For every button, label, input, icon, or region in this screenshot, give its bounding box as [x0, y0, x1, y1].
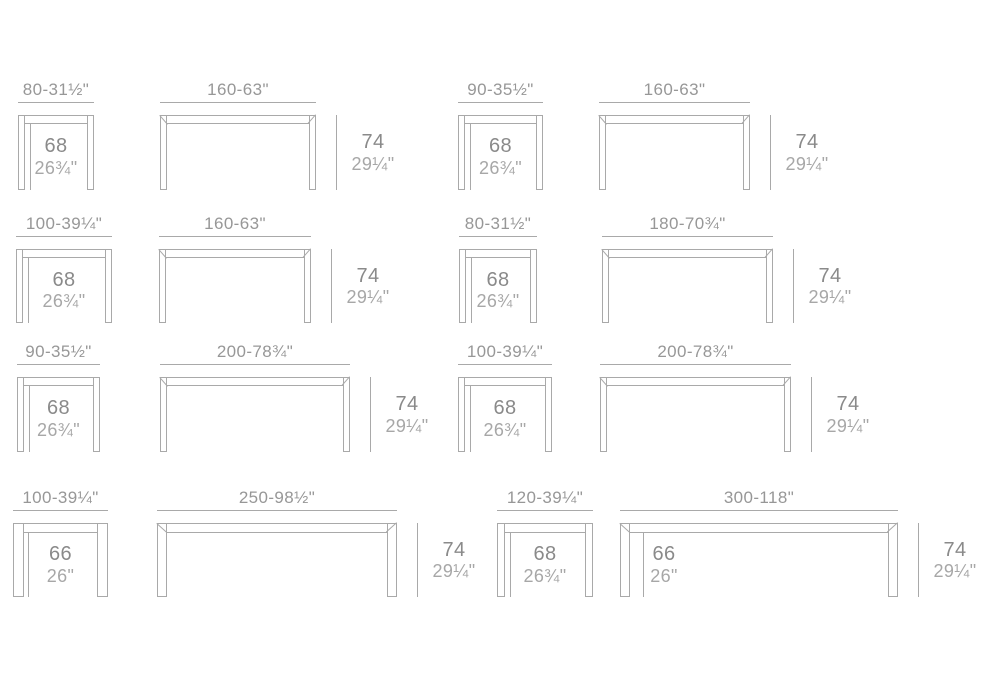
- height-label-inside: 68 26¾": [458, 385, 552, 452]
- tabletop-edge: [160, 377, 350, 378]
- width-dimension-label: 80-31½": [0, 80, 134, 100]
- table-leg-left: [157, 523, 167, 597]
- height-cm-value: 66: [652, 543, 675, 565]
- width-dimension-line: [458, 364, 552, 365]
- width-dimension-label: 90-35½": [0, 342, 140, 362]
- height-cm-value: 68: [52, 269, 75, 291]
- width-dimension-line: [159, 236, 311, 237]
- height-inches-value: 29¼": [826, 416, 869, 436]
- figure-table-80-row2: 80-31½" 68 26¾": [459, 249, 537, 323]
- width-dimension-line: [599, 102, 750, 103]
- height-label-right: 74 29¼": [339, 249, 397, 323]
- height-inches-value: 29¼": [346, 287, 389, 307]
- height-label-inside: 68 26¾": [16, 257, 112, 323]
- figure-table-160-row1-b: 160-63" 74 29¼": [599, 115, 750, 190]
- height-label-inside: 68 26¾": [458, 123, 543, 190]
- height-dimension-line: [417, 523, 418, 597]
- tabletop-edge: [13, 523, 108, 524]
- tabletop-edge: [18, 115, 94, 116]
- width-dimension-label: 200-78¾": [560, 342, 831, 362]
- height-label-inside: 66 26": [624, 532, 704, 597]
- height-cm-value: 66: [49, 543, 72, 565]
- height-inches-value: 26": [47, 566, 75, 586]
- height-inches-value: 26¾": [42, 291, 85, 311]
- tabletop-apron-line: [607, 385, 784, 386]
- table-leg-right: [343, 377, 350, 452]
- table-leg-right: [888, 523, 898, 597]
- table-leg-left: [600, 377, 607, 452]
- height-cm-value: 74: [836, 393, 859, 415]
- figure-table-90-row3: 90-35½" 68 26¾": [17, 377, 100, 452]
- height-cm-value: 68: [493, 397, 516, 419]
- height-inches-value: 26¾": [523, 566, 566, 586]
- dimension-diagram: 80-31½" 68 26¾" 160-63" 74 29¼" 90-35½": [0, 0, 1000, 700]
- tabletop-apron-line: [167, 123, 309, 124]
- height-label-right: 74 29¼": [926, 523, 984, 597]
- height-label-right: 74 29¼": [801, 249, 859, 323]
- height-label-right: 74 29¼": [378, 377, 436, 452]
- height-cm-value: 68: [486, 269, 509, 291]
- height-dimension-line: [793, 249, 794, 323]
- height-cm-value: 74: [361, 131, 384, 153]
- tabletop-edge: [16, 249, 112, 250]
- width-dimension-line: [620, 510, 898, 511]
- table-leg-right: [309, 115, 316, 190]
- height-inches-value: 29¼": [351, 154, 394, 174]
- width-dimension-line: [16, 236, 112, 237]
- height-dimension-line: [918, 523, 919, 597]
- figure-table-80-row1: 80-31½" 68 26¾": [18, 115, 94, 190]
- height-inches-value: 26¾": [37, 420, 80, 440]
- table-leg-left: [599, 115, 606, 190]
- tabletop-edge: [458, 115, 543, 116]
- figure-table-200-row3-b: 200-78¾" 74 29¼": [600, 377, 791, 452]
- width-dimension-label: 300-118": [580, 488, 938, 508]
- width-dimension-label: 80-31½": [419, 214, 577, 234]
- figure-table-160-row2: 160-63" 74 29¼": [159, 249, 311, 323]
- figure-table-180-row2: 180-70¾" 74 29¼": [602, 249, 773, 323]
- width-dimension-line: [458, 102, 543, 103]
- width-dimension-line: [160, 102, 316, 103]
- height-cm-value: 74: [356, 265, 379, 287]
- width-dimension-line: [602, 236, 773, 237]
- figure-table-200-row3-a: 200-78¾" 74 29¼": [160, 377, 350, 452]
- height-inches-value: 26¾": [479, 158, 522, 178]
- tabletop-edge: [458, 377, 552, 378]
- height-inches-value: 29¼": [933, 561, 976, 581]
- tabletop-apron-line: [609, 257, 766, 258]
- figure-table-250-row4: 250-98½" 74 29¼": [157, 523, 397, 597]
- table-leg-left: [160, 115, 167, 190]
- height-cm-value: 74: [442, 539, 465, 561]
- figure-table-100-row3: 100-39¼" 68 26¾": [458, 377, 552, 452]
- tabletop-edge: [620, 523, 898, 524]
- width-dimension-label: 250-98½": [117, 488, 437, 508]
- width-dimension-label: 180-70¾": [562, 214, 813, 234]
- tabletop-apron-line: [167, 532, 387, 533]
- height-inches-value: 26¾": [476, 291, 519, 311]
- height-cm-value: 74: [818, 265, 841, 287]
- tabletop-edge: [160, 115, 316, 116]
- tabletop-edge: [602, 249, 773, 250]
- table-leg-right: [784, 377, 791, 452]
- height-dimension-line: [370, 377, 371, 452]
- height-inches-value: 26¾": [34, 158, 77, 178]
- table-leg-left: [602, 249, 609, 323]
- figure-table-160-row1-a: 160-63" 74 29¼": [160, 115, 316, 190]
- height-cm-value: 74: [395, 393, 418, 415]
- height-label-right: 74 29¼": [819, 377, 877, 452]
- height-dimension-line: [770, 115, 771, 190]
- height-cm-value: 74: [795, 131, 818, 153]
- height-dimension-line: [811, 377, 812, 452]
- width-dimension-line: [497, 510, 593, 511]
- width-dimension-line: [600, 364, 791, 365]
- tabletop-apron-line: [606, 123, 743, 124]
- figure-table-120-row4: 120-39¼" 68 26¾": [497, 523, 593, 597]
- width-dimension-label: 160-63": [559, 80, 790, 100]
- width-dimension-line: [18, 102, 94, 103]
- tabletop-edge: [600, 377, 791, 378]
- height-cm-value: 68: [47, 397, 70, 419]
- figure-table-300-row4: 300-118" 66 26" 74 29¼": [620, 523, 898, 597]
- tabletop-edge: [497, 523, 593, 524]
- height-inches-value: 29¼": [385, 416, 428, 436]
- width-dimension-label: 160-63": [119, 214, 351, 234]
- table-leg-right: [387, 523, 397, 597]
- height-label-right: 74 29¼": [344, 115, 402, 190]
- tabletop-edge: [459, 249, 537, 250]
- table-leg-right: [304, 249, 311, 323]
- height-inches-value: 29¼": [808, 287, 851, 307]
- height-label-inside: 68 26¾": [497, 532, 593, 597]
- table-leg-left: [159, 249, 166, 323]
- width-dimension-line: [17, 364, 100, 365]
- width-dimension-line: [459, 236, 537, 237]
- height-inches-value: 26": [650, 566, 678, 586]
- height-inches-value: 26¾": [483, 420, 526, 440]
- tabletop-edge: [599, 115, 750, 116]
- table-leg-left: [160, 377, 167, 452]
- height-label-inside: 66 26": [13, 532, 108, 597]
- width-dimension-label: 160-63": [120, 80, 356, 100]
- width-dimension-label: 200-78¾": [120, 342, 390, 362]
- height-cm-value: 68: [489, 135, 512, 157]
- height-dimension-line: [331, 249, 332, 323]
- width-dimension-line: [157, 510, 397, 511]
- height-inches-value: 29¼": [785, 154, 828, 174]
- figure-table-90-row1: 90-35½" 68 26¾": [458, 115, 543, 190]
- height-cm-value: 68: [44, 135, 67, 157]
- height-cm-value: 74: [943, 539, 966, 561]
- height-cm-value: 68: [533, 543, 556, 565]
- width-dimension-line: [160, 364, 350, 365]
- figure-table-100-row2: 100-39¼" 68 26¾": [16, 249, 112, 323]
- height-inches-value: 29¼": [432, 561, 475, 581]
- width-dimension-line: [13, 510, 108, 511]
- table-leg-right: [743, 115, 750, 190]
- height-label-right: 74 29¼": [425, 523, 483, 597]
- tabletop-edge: [159, 249, 311, 250]
- height-dimension-line: [336, 115, 337, 190]
- height-label-inside: 68 26¾": [18, 123, 94, 190]
- height-label-inside: 68 26¾": [17, 385, 100, 452]
- tabletop-edge: [157, 523, 397, 524]
- tabletop-edge: [17, 377, 100, 378]
- height-label-inside: 68 26¾": [459, 257, 537, 323]
- figure-table-100-row4: 100-39¼" 66 26": [13, 523, 108, 597]
- tabletop-apron-line: [167, 385, 343, 386]
- height-label-right: 74 29¼": [778, 115, 836, 190]
- tabletop-apron-line: [166, 257, 304, 258]
- table-leg-right: [766, 249, 773, 323]
